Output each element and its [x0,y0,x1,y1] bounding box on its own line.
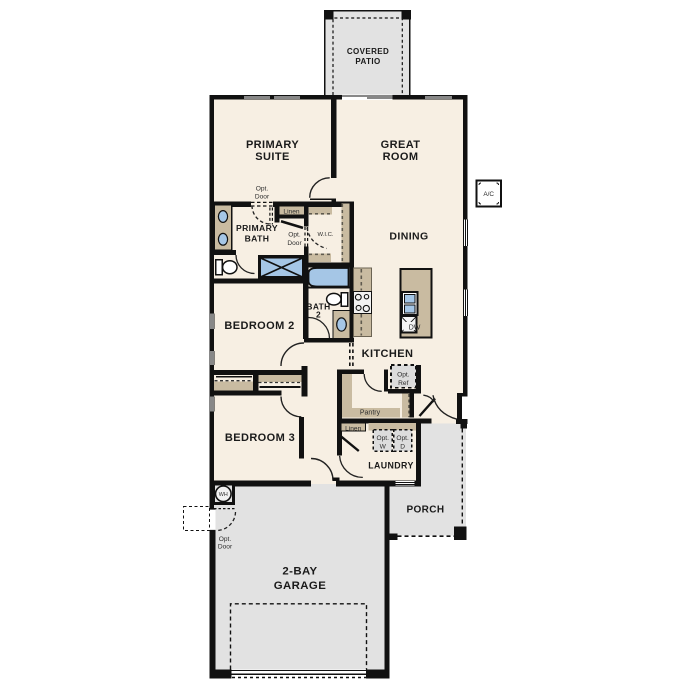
svg-text:Ref: Ref [398,380,408,387]
svg-text:Opt.: Opt. [288,232,301,239]
svg-text:D: D [400,443,405,450]
svg-text:BEDROOM 2: BEDROOM 2 [224,320,294,332]
svg-text:Door: Door [287,240,302,247]
svg-text:2-BAY: 2-BAY [282,566,317,578]
svg-text:PRIMARY: PRIMARY [236,223,278,233]
svg-text:Opt.: Opt. [397,372,410,379]
svg-text:Opt.: Opt. [219,536,232,543]
svg-text:A/C: A/C [483,191,494,198]
svg-text:COVERED: COVERED [347,47,389,56]
svg-text:WH: WH [219,492,228,498]
svg-text:SUITE: SUITE [255,151,289,163]
svg-text:BEDROOM 3: BEDROOM 3 [225,432,295,444]
svg-text:PATIO: PATIO [355,57,380,66]
svg-text:ROOM: ROOM [383,151,419,163]
svg-text:Opt.: Opt. [376,435,389,442]
svg-text:Opt.: Opt. [256,186,269,193]
svg-text:Door: Door [255,193,270,200]
svg-text:PRIMARY: PRIMARY [246,139,299,151]
svg-text:GARAGE: GARAGE [274,580,326,592]
svg-text:DW: DW [409,325,421,332]
svg-text:LAUNDRY: LAUNDRY [368,460,413,470]
svg-text:GREAT: GREAT [381,139,421,151]
svg-text:KITCHEN: KITCHEN [362,348,414,360]
svg-text:Linen: Linen [283,209,299,216]
svg-text:W: W [380,443,387,450]
svg-text:W.I.C.: W.I.C. [317,232,333,238]
svg-text:Linen: Linen [345,425,361,432]
svg-text:PORCH: PORCH [406,505,444,516]
svg-text:BATH: BATH [245,233,270,243]
svg-text:Opt.: Opt. [396,435,409,442]
svg-text:2: 2 [316,310,321,320]
svg-text:Pantry: Pantry [360,410,381,417]
svg-text:DINING: DINING [389,230,428,242]
svg-text:Door: Door [218,544,233,551]
